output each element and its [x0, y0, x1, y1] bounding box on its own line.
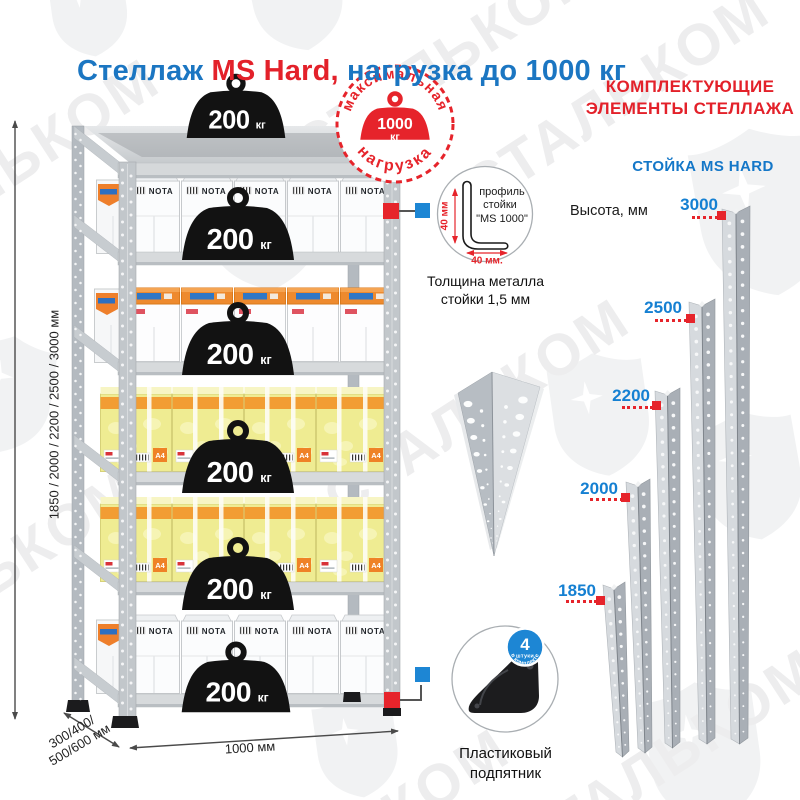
post-leader-2200: [622, 406, 653, 409]
profile-text-3: "MS 1000": [476, 213, 528, 225]
thickness-caption: Толщина металла стойки 1,5 мм: [403, 272, 568, 308]
component-post: [655, 388, 680, 748]
post-leader-2000: [590, 498, 623, 501]
foot-caption-line-1: Пластиковый: [428, 744, 583, 764]
foot-caption: Пластиковый подпятник: [428, 744, 583, 783]
foot-base-black: [383, 708, 401, 716]
plastic-foot-circle: 4 штуки в комплекте: [452, 626, 558, 732]
paper-box-orange: [288, 288, 339, 362]
height-axis-label: Высота, мм: [570, 203, 648, 219]
foot-caption-line-2: подпятник: [428, 764, 583, 784]
components-heading-line-1: КОМПЛЕКТУЮЩИЕ: [575, 76, 800, 98]
profile-connector-line: [399, 210, 416, 212]
profile-dim-vertical: 40 мм: [440, 202, 451, 231]
post-label-3000: 3000: [668, 195, 718, 215]
profile-text-1: профиль: [479, 186, 525, 198]
thickness-line-1: Толщина металла: [403, 272, 568, 290]
badge-count: 4: [520, 635, 530, 654]
paper-box-yellow: [317, 497, 388, 582]
svg-text:кг: кг: [260, 238, 271, 252]
post-marker-1850: [596, 596, 605, 605]
component-post: [603, 582, 629, 757]
component-post: [722, 206, 750, 744]
corner-post-image: [454, 372, 544, 556]
paper-box: [288, 175, 339, 254]
post-leader-2500: [655, 319, 687, 322]
profile-detail-circle: 40 мм 40 мм. профиль стойки "MS 1000": [438, 167, 533, 267]
svg-text:кг: кг: [256, 119, 267, 131]
component-post: [626, 479, 652, 753]
badge-unit: кг: [390, 131, 400, 143]
badge-word1: штуки: [516, 654, 534, 660]
stand-subheading: СТОЙКА MS HARD: [598, 158, 800, 175]
page-title: Стеллаж MS Hard, нагрузка до 1000 кг: [44, 22, 626, 121]
svg-text:200: 200: [205, 677, 250, 708]
components-heading-line-2: ЭЛЕМЕНТЫ СТЕЛЛАЖА: [575, 98, 800, 120]
post-marker-2500: [686, 314, 695, 323]
svg-text:200: 200: [207, 339, 254, 371]
svg-text:200: 200: [207, 457, 254, 489]
foot-marker-red: [384, 692, 400, 708]
svg-text:кг: кг: [260, 353, 271, 367]
foot-connector-h: [400, 699, 422, 701]
post-label-2500: 2500: [632, 298, 682, 318]
infographic-page: СТАЛЬКОМ СТАЛЬКОМ СТАЛЬКОМ СТАЛЬКОМ СТАЛ…: [0, 0, 800, 800]
profile-marker-blue: [415, 203, 430, 218]
svg-text:кг: кг: [260, 471, 271, 485]
height-dimension-label: 1850 / 2000 / 2200 / 2500 / 3000 мм: [47, 265, 62, 565]
component-post: [689, 299, 715, 744]
components-heading: КОМПЛЕКТУЮЩИЕ ЭЛЕМЕНТЫ СТЕЛЛАЖА: [575, 76, 800, 120]
post-label-2000: 2000: [568, 479, 618, 499]
profile-marker-red: [383, 203, 399, 219]
post-marker-2200: [652, 401, 661, 410]
right-posts-layer: [603, 206, 750, 757]
post-label-1850: 1850: [546, 581, 596, 601]
profile-dim-horizontal: 40 мм.: [471, 256, 503, 267]
foot-connector-v: [420, 685, 422, 701]
post-leader-1850: [566, 600, 597, 603]
paper-box-yellow: [317, 387, 388, 472]
svg-text:200: 200: [207, 224, 254, 256]
post-marker-2000: [621, 493, 630, 502]
paper-box: [288, 615, 339, 694]
foot-count-badge: 4 штуки в комплекте: [507, 629, 544, 667]
foot-marker-blue: [415, 667, 430, 682]
svg-text:кг: кг: [260, 588, 271, 602]
post-label-2200: 2200: [600, 386, 650, 406]
post-leader-3000: [692, 216, 718, 219]
title-part-2: MS Hard,: [212, 55, 339, 87]
title-part-1: Стеллаж: [77, 55, 211, 87]
svg-text:кг: кг: [258, 691, 269, 705]
post-marker-3000: [717, 211, 726, 220]
profile-text-2: стойки: [483, 199, 517, 211]
thickness-line-2: стойки 1,5 мм: [403, 290, 568, 308]
svg-text:200: 200: [207, 574, 254, 606]
